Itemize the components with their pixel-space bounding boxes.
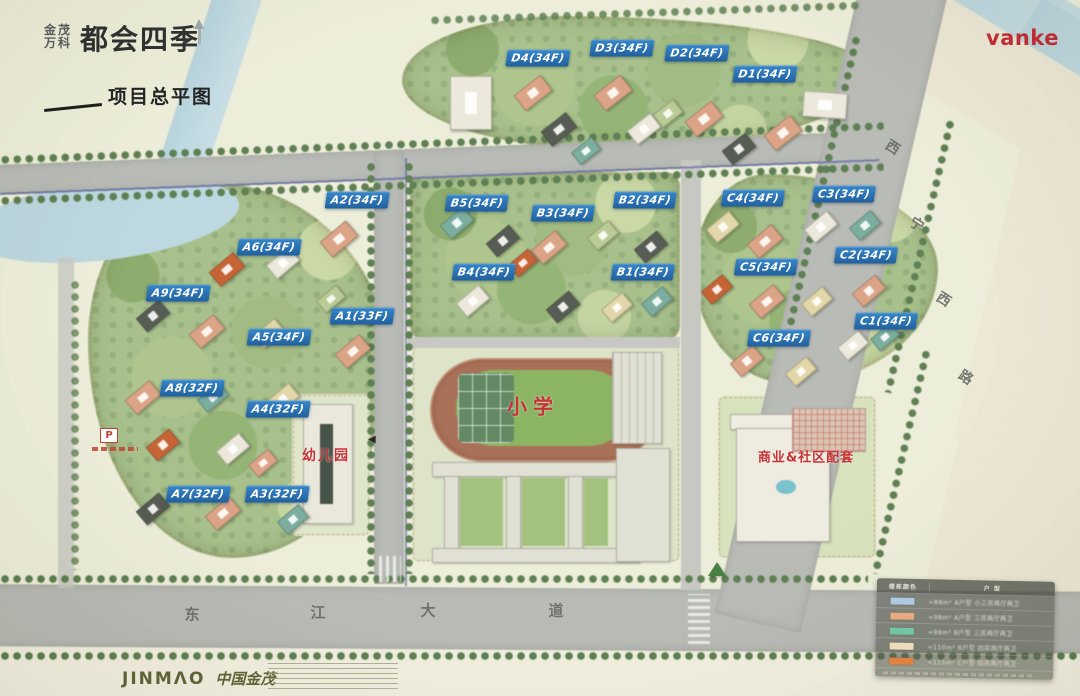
building-badge-c3: C3(34F) [812,186,876,203]
building-badge-d3: D3(34F) [589,40,655,57]
building-badge-b5: B5(34F) [445,195,510,212]
dongjiang-avenue-char: 江 [310,602,325,623]
page-title: 项目总平图 [108,82,213,109]
site-plan-image: D4(34F)D3(34F)D2(34F)D1(34F)A2(34F)A6(34… [0,0,1080,696]
legend-row-text: ≈98m² B户型 三房两厅两卫 [928,627,1013,638]
building-badge-a9: A9(34F) [146,285,211,302]
xining-west-road-char: 西 [933,287,956,311]
building-badge-a7: A7(32F) [166,486,231,503]
project-title: 都会四季 [80,18,200,58]
building-badge-c1: C1(34F) [854,313,918,330]
building-badge-d1: D1(34F) [732,66,798,83]
building-badge-c4: C4(34F) [721,190,785,207]
poplar-icon [198,26,201,44]
legend-color-swatch [890,642,914,650]
title-stroke [44,103,102,112]
legend-footnote-illegible [883,671,1033,677]
parking-caption-illegible [92,447,138,451]
jinmao-logo-cn: 中国金茂 [215,672,275,688]
building-badge-b4: B4(34F) [452,264,517,281]
legend-color-swatch [889,657,913,665]
legend-color-swatch [890,627,914,635]
building-badge-b3: B3(34F) [531,205,596,222]
building-badge-d2: D2(34F) [664,45,730,62]
building-badge-c5: C5(34F) [734,259,798,276]
fine-print-illegible [268,663,398,689]
dongjiang-avenue-char: 道 [548,600,563,621]
dongjiang-avenue-char: 大 [420,600,435,621]
entrance-arrow-icon: ◀ [368,434,376,445]
building-badge-b1: B1(34F) [611,264,676,281]
building-badge-a1: A1(33F) [330,308,395,325]
building-badge-a8: A8(32F) [160,380,225,397]
legend-header-color: 楼栋颜色 [877,581,930,591]
brand-vanke-text: 万科 [44,37,72,50]
dongjiang-avenue-char: 东 [184,604,199,625]
building-badge-a5: A5(34F) [247,329,312,346]
building-badge-c2: C2(34F) [834,247,898,264]
commercial-label: 商业&社区配套 [758,447,854,466]
legend-row: ≈115m² C户型 四房两厅两卫 [875,653,1053,672]
legend-row-text: ≈110m² B户型 四房两厅两卫 [928,642,1017,653]
building-badge-c6: C6(34F) [747,330,811,347]
legend-color-swatch [891,597,915,605]
xining-west-road-char: 宁 [906,212,929,236]
developer-brand-stack: 金茂 万科 [44,24,72,50]
building-badge-b2: B2(34F) [613,192,678,209]
legend-row-text: ≈98m² A户型 三房两厅两卫 [928,612,1013,623]
building-badge-a2: A2(34F) [325,192,390,209]
xining-west-road-char: 西 [882,135,905,159]
parking-icon: P [100,428,118,443]
legend-header-type: 户 型 [930,582,1055,594]
building-badge-a3: A3(32F) [245,486,310,503]
kindergarten-label: 幼儿园 [302,445,350,465]
jinmao-logo-en: JINMΛO [122,669,205,689]
legend-row-text: ≈115m² C户型 四房两厅两卫 [927,657,1016,668]
building-badge-d4: D4(34F) [505,50,571,67]
vanke-logo: vanke [986,26,1059,50]
legend-panel: 楼栋颜色 户 型 ≈88m² A户型 小三房两厅两卫≈98m² A户型 三房两厅… [875,578,1055,680]
building-badge-a6: A6(34F) [237,239,302,256]
north-tree-marker-icon [708,562,726,576]
legend-row-text: ≈88m² A户型 小三房两厅两卫 [928,597,1020,608]
legend-color-swatch [890,612,914,620]
xining-west-road-char: 路 [955,365,978,389]
jinmao-logo: JINMΛO中国金茂 [122,668,275,689]
building-badge-a4: A4(32F) [246,401,311,418]
primary-school-label: 小学 [507,391,559,420]
